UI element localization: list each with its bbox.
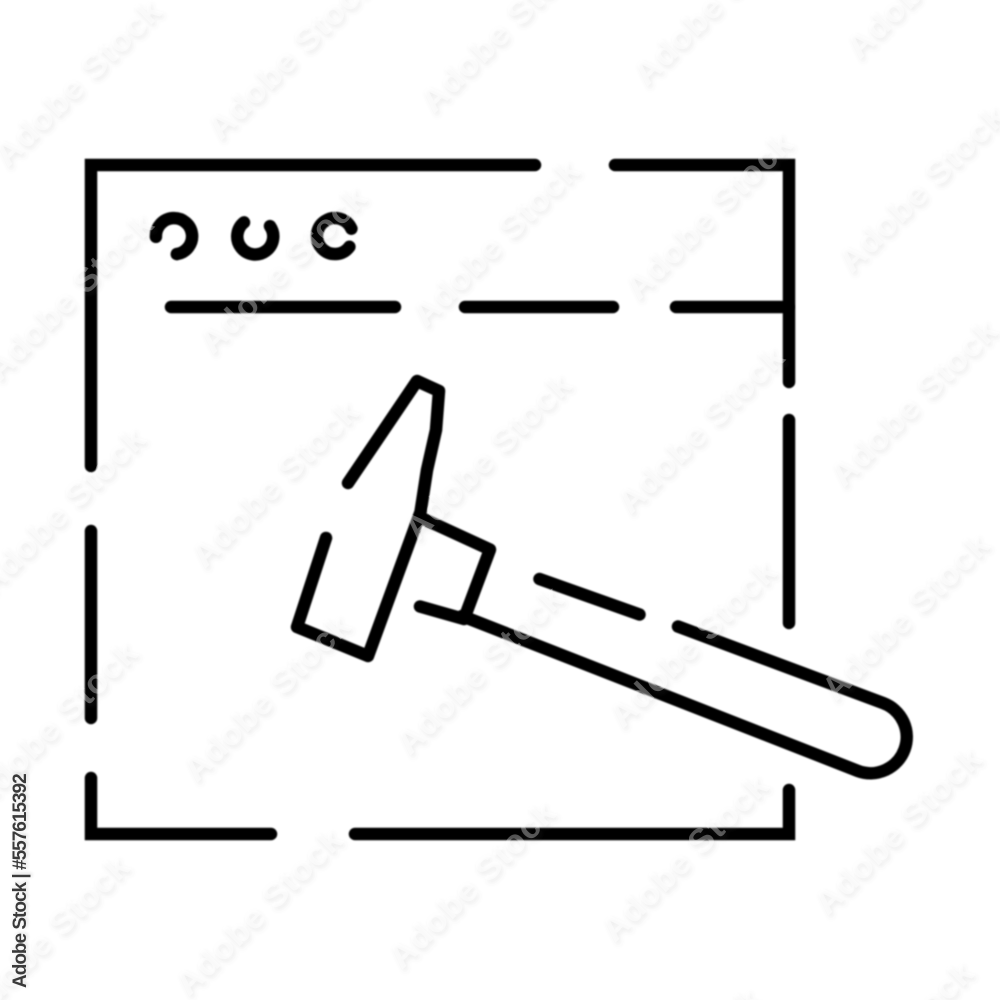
svg-text:Adobe Stock: Adobe Stock [594,766,777,949]
svg-text:Adobe Stock: Adobe Stock [168,820,351,1000]
svg-text:Adobe Stock: Adobe Stock [200,0,383,147]
svg-text:Adobe Stock: Adobe Stock [0,205,162,388]
svg-text:Adobe Stock: Adobe Stock [823,311,1000,494]
svg-text:Adobe Stock: Adobe Stock [413,0,596,120]
svg-text:Adobe Stock: Adobe Stock [815,525,998,708]
svg-text:Adobe Stock: Adobe Stock [176,606,359,789]
svg-text:Adobe Stock: Adobe Stock [626,0,809,93]
svg-text:Adobe Stock: Adobe Stock [381,793,564,976]
svg-text:Adobe Stock: Adobe Stock [0,0,170,174]
svg-text:Adobe Stock: Adobe Stock [610,338,793,521]
svg-text:Adobe Stock: Adobe Stock [618,124,801,307]
svg-text:Adobe Stock: Adobe Stock [586,980,769,1000]
svg-text:Adobe Stock: Adobe Stock [192,178,375,361]
svg-text:Adobe Stock: Adobe Stock [831,97,1000,280]
svg-text:Adobe Stock: Adobe Stock [839,0,1000,66]
svg-text:Adobe Stock: Adobe Stock [0,419,154,602]
svg-text:Adobe Stock: Adobe Stock [184,392,367,575]
svg-text:Adobe Stock: Adobe Stock [799,953,982,1000]
